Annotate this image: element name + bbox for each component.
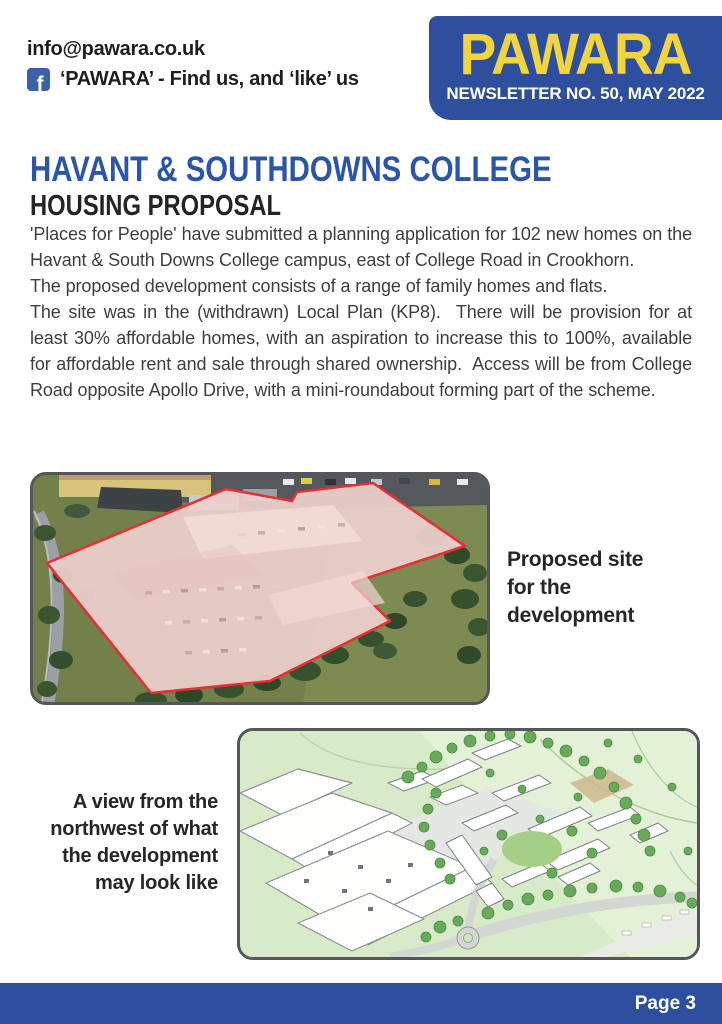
article-title: HAVANT & SOUTHDOWNS COLLEGE <box>30 150 586 190</box>
article-subtitle: HOUSING PROPOSAL <box>30 191 573 221</box>
facebook-handle-text: ‘PAWARA’ - Find us, and ‘like’ us <box>60 68 359 91</box>
aerial-photo-of-proposed-site <box>33 475 487 702</box>
masthead-subtitle: NEWSLETTER NO. 50, MAY 2022 <box>429 84 722 104</box>
facebook-row: f ‘PAWARA’ - Find us, and ‘like’ us <box>27 68 359 91</box>
figure-aerial-photo <box>30 472 490 705</box>
article: HAVANT & SOUTHDOWNS COLLEGE HOUSING PROP… <box>30 150 692 403</box>
page-footer: Page 3 <box>0 983 722 1024</box>
facebook-icon: f <box>27 68 50 91</box>
article-paragraph: The site was in the (withdrawn) Local Pl… <box>30 299 692 403</box>
page-number: Page 3 <box>635 993 696 1015</box>
masthead-title: PAWARA <box>436 26 714 84</box>
masthead: PAWARA NEWSLETTER NO. 50, MAY 2022 <box>429 16 722 120</box>
newsletter-page: info@pawara.co.uk f ‘PAWARA’ - Find us, … <box>0 0 722 1024</box>
article-paragraph: The proposed development consists of a r… <box>30 273 692 299</box>
figure-caption: Proposed site for the development <box>507 546 647 630</box>
figure-illustration <box>237 728 700 960</box>
figure-caption: A view from the northwest of what the de… <box>28 789 218 897</box>
article-paragraph: 'Places for People' have submitted a pla… <box>30 221 692 273</box>
contact-email: info@pawara.co.uk <box>27 38 359 61</box>
artist-impression-of-development <box>240 731 697 957</box>
contact-block: info@pawara.co.uk f ‘PAWARA’ - Find us, … <box>27 38 359 91</box>
